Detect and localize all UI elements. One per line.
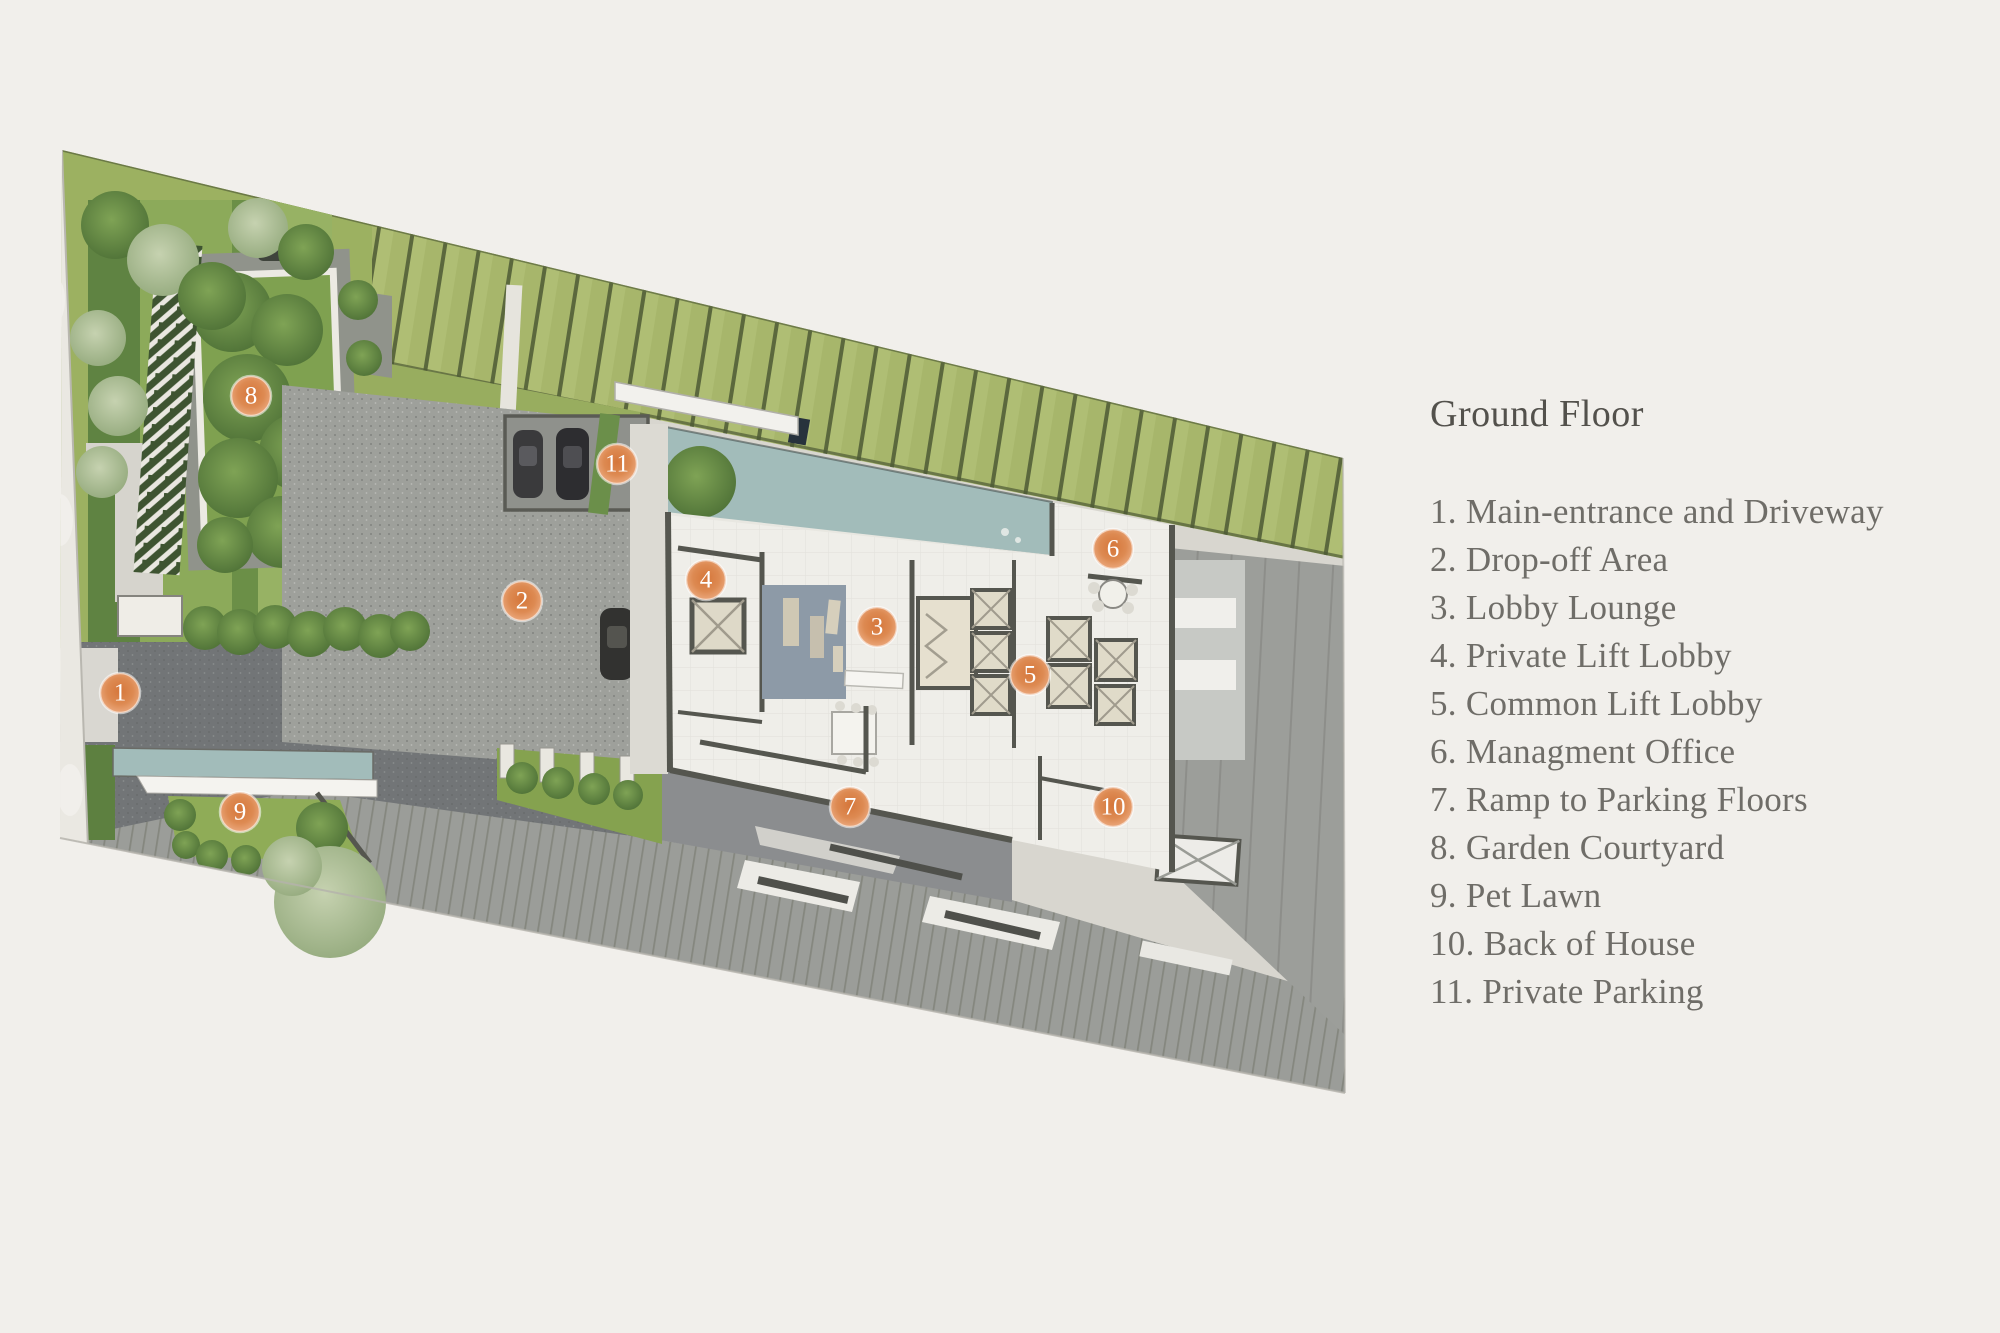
- plan-marker-number: 3: [871, 614, 884, 641]
- plan-marker-1: 1: [100, 673, 140, 713]
- plan-marker-number: 2: [516, 588, 529, 615]
- legend-item-10: 10. Back of House: [1430, 920, 1970, 968]
- legend-title: Ground Floor: [1430, 392, 1970, 436]
- plan-marker-number: 9: [234, 799, 247, 826]
- plan-marker-11: 11: [597, 444, 637, 484]
- plan-marker-number: 7: [844, 794, 857, 821]
- plan-marker-number: 4: [700, 567, 713, 594]
- plan-marker-number: 6: [1107, 536, 1120, 563]
- pool-tree: [664, 446, 736, 518]
- entry-walkway: [630, 424, 668, 774]
- lift-shaft: [692, 600, 744, 652]
- plan-marker-6: 6: [1093, 529, 1133, 569]
- legend-item-8: 8. Garden Courtyard: [1430, 824, 1970, 872]
- plan-marker-4: 4: [686, 560, 726, 600]
- stair-room: [918, 598, 976, 688]
- plan-marker-number: 11: [605, 451, 629, 478]
- plan-marker-number: 8: [245, 383, 258, 410]
- plan-marker-10: 10: [1093, 787, 1133, 827]
- legend-item-1: 1. Main-entrance and Driveway: [1430, 488, 1970, 536]
- plan-marker-8: 8: [231, 376, 271, 416]
- floor-plan-page: 1234567891011 Ground Floor 1. Main-entra…: [0, 0, 2000, 1333]
- plan-marker-3: 3: [857, 607, 897, 647]
- plan-marker-number: 10: [1101, 794, 1126, 821]
- plan-marker-number: 1: [114, 680, 127, 707]
- plan-marker-9: 9: [220, 792, 260, 832]
- legend-item-4: 4. Private Lift Lobby: [1430, 632, 1970, 680]
- legend-item-5: 5. Common Lift Lobby: [1430, 680, 1970, 728]
- plan-marker-number: 5: [1024, 662, 1037, 689]
- legend-item-7: 7. Ramp to Parking Floors: [1430, 776, 1970, 824]
- legend-item-2: 2. Drop-off Area: [1430, 536, 1970, 584]
- plan-marker-7: 7: [830, 787, 870, 827]
- legend-item-3: 3. Lobby Lounge: [1430, 584, 1970, 632]
- lift-bank-a: [972, 590, 1010, 714]
- legend-list: 1. Main-entrance and Driveway2. Drop-off…: [1430, 488, 1970, 1016]
- legend-item-9: 9. Pet Lawn: [1430, 872, 1970, 920]
- legend-item-11: 11. Private Parking: [1430, 968, 1970, 1016]
- plan-marker-2: 2: [502, 581, 542, 621]
- plan-marker-5: 5: [1010, 655, 1050, 695]
- legend: Ground Floor 1. Main-entrance and Drivew…: [1430, 392, 1970, 1016]
- legend-item-6: 6. Managment Office: [1430, 728, 1970, 776]
